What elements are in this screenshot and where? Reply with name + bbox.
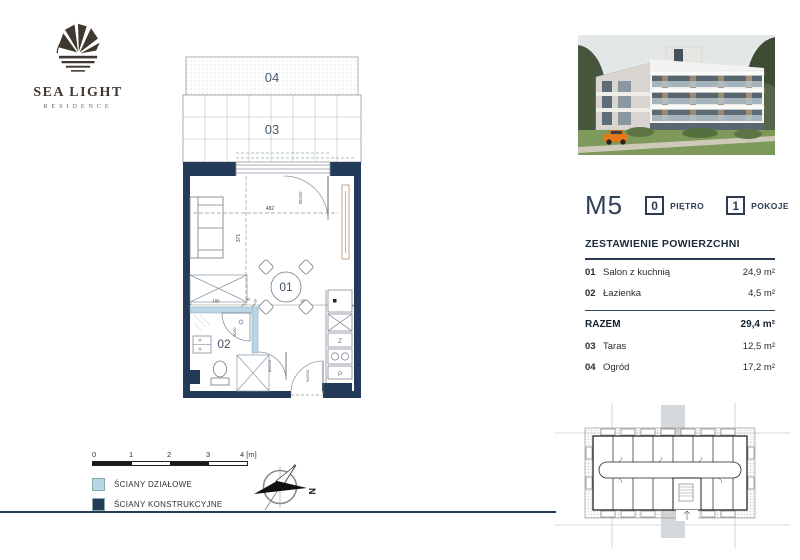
kitchen-units: Z P xyxy=(326,290,352,383)
rooms-value-box: 1 xyxy=(726,196,745,215)
sun-sail-icon xyxy=(52,20,104,76)
dim-seg-1: 188 xyxy=(212,299,220,304)
toilet xyxy=(211,361,229,385)
row-name: Salon z kuchnią xyxy=(603,267,743,278)
floor-plan: 04 03 90/200 xyxy=(178,52,364,402)
dining-set: 01 xyxy=(258,259,314,315)
dim-width: 482 xyxy=(266,206,275,212)
garden-label: 04 xyxy=(265,70,279,85)
area-row: 03 Taras 12,5 m² xyxy=(585,334,775,355)
row-name: Ogród xyxy=(603,362,743,373)
floor-label: PIĘTRO xyxy=(670,201,704,211)
total-value: 29,4 m² xyxy=(741,319,775,330)
dim-seg-3: 8 xyxy=(254,299,257,304)
total-label: RAZEM xyxy=(585,319,741,330)
row-value: 17,2 m² xyxy=(743,362,775,373)
areas-heading: ZESTAWIENIE POWIERZCHNI xyxy=(585,238,775,260)
rooms-label: POKOJE xyxy=(751,201,789,211)
building-key-plan xyxy=(555,403,790,548)
scale-bar-segments xyxy=(92,461,248,466)
structural-swatch xyxy=(92,498,105,511)
total-row: RAZEM 29,4 m² xyxy=(585,311,775,334)
shower-size: 90/90 xyxy=(233,328,237,337)
entry-door-size: 90/200 xyxy=(305,369,310,382)
areas-table: ZESTAWIENIE POWIERZCHNI 01 Salon z kuchn… xyxy=(585,238,775,376)
partition-swatch xyxy=(92,478,105,491)
footer-rule xyxy=(0,511,556,513)
row-name: Łazienka xyxy=(603,288,748,299)
scale-bar: 0 1 2 3 4 [m] xyxy=(92,450,262,472)
garden-area: 04 xyxy=(186,57,358,95)
terrace-area: 03 xyxy=(183,95,361,162)
row-value: 4,5 m² xyxy=(748,288,775,299)
radiator xyxy=(342,185,349,259)
brand-name: SEA LIGHT xyxy=(30,85,126,101)
building-photo xyxy=(578,35,775,155)
scale-tick-0: 0 xyxy=(92,450,96,459)
entry-door: 90/200 xyxy=(291,361,323,395)
bath-door-size: 80/200 xyxy=(267,359,272,372)
scale-tick-3: 3 xyxy=(206,450,210,459)
floor-value-box: 0 xyxy=(645,196,664,215)
bath-label: 02 xyxy=(217,337,231,351)
row-value: 12,5 m² xyxy=(743,341,775,352)
wardrobe-hall xyxy=(237,355,269,391)
dim-seg-2: 40 xyxy=(246,298,250,302)
sofa xyxy=(190,197,223,258)
balcony-door: 90/200 xyxy=(284,176,328,220)
brand-logo: SEA LIGHT RESIDENCE xyxy=(30,20,126,110)
living-label: 01 xyxy=(279,280,293,294)
area-row: 01 Salon z kuchnią 24,9 m² xyxy=(585,260,775,281)
scale-tick-2: 2 xyxy=(167,450,171,459)
terrace-label: 03 xyxy=(265,122,279,137)
row-number: 03 xyxy=(585,341,603,352)
washer-label: P xyxy=(338,372,342,378)
compass-needle xyxy=(254,481,307,494)
floor-indicator: 0 PIĘTRO xyxy=(645,196,704,215)
balcony-window xyxy=(236,162,330,176)
stairwell xyxy=(673,478,701,521)
row-number: 01 xyxy=(585,267,603,278)
legend-label: ŚCIANY KONSTRUKCYJNE xyxy=(114,500,223,509)
brochure-page: SEA LIGHT RESIDENCE 04 03 xyxy=(0,0,800,560)
rooms-indicator: 1 POKOJE xyxy=(726,196,789,215)
legend-item-structural: ŚCIANY KONSTRUKCYJNE xyxy=(92,498,223,511)
row-number: 04 xyxy=(585,362,603,373)
scale-tick-1: 1 xyxy=(129,450,133,459)
balcony-door-size: 90/200 xyxy=(298,191,303,204)
area-row: 02 Łazienka 4,5 m² xyxy=(585,281,775,302)
washbasin xyxy=(193,336,211,353)
unit-header: M5 0 PIĘTRO 1 POKOJE xyxy=(585,190,777,221)
unit-code: M5 xyxy=(585,190,623,221)
row-value: 24,9 m² xyxy=(743,267,775,278)
compass-north-label: N xyxy=(307,488,316,495)
legend-item-partition: ŚCIANY DZIAŁOWE xyxy=(92,478,223,491)
brand-subtitle: RESIDENCE xyxy=(30,104,126,110)
dim-height: 371 xyxy=(236,234,242,243)
fridge-label: Z xyxy=(338,339,342,345)
legend-label: ŚCIANY DZIAŁOWE xyxy=(114,480,192,489)
row-name: Taras xyxy=(603,341,743,352)
area-row: 04 Ogród 17,2 m² xyxy=(585,355,775,376)
row-number: 02 xyxy=(585,288,603,299)
